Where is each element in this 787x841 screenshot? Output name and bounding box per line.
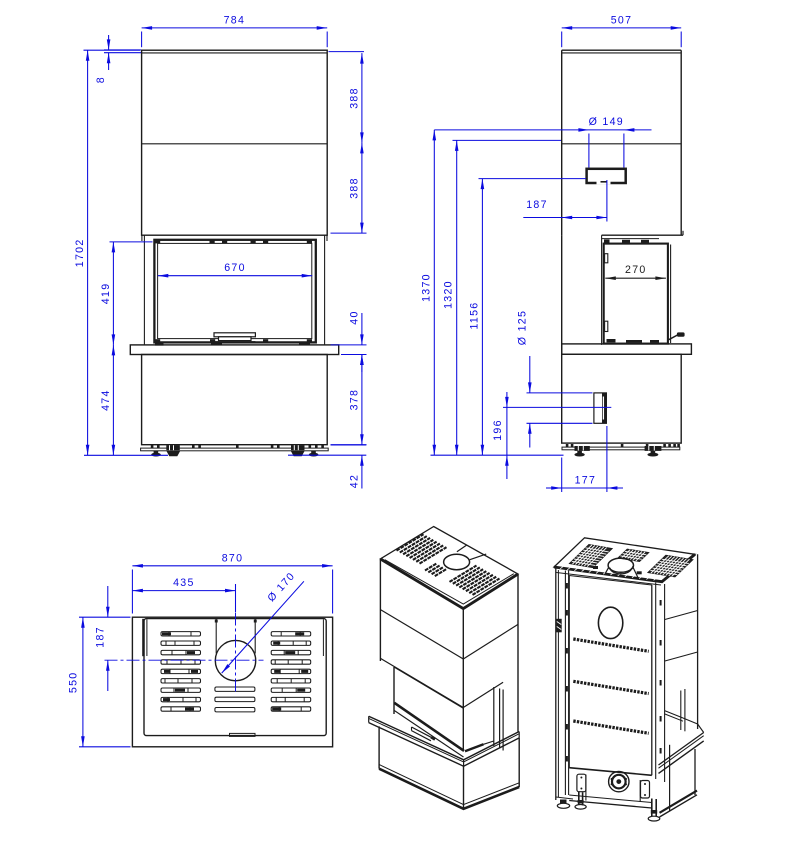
svg-text:419: 419 <box>100 283 112 305</box>
svg-text:1320: 1320 <box>443 280 455 309</box>
svg-text:270: 270 <box>625 264 647 276</box>
svg-text:378: 378 <box>348 389 360 411</box>
svg-text:388: 388 <box>348 87 360 109</box>
svg-text:Ø 125: Ø 125 <box>516 310 528 345</box>
svg-text:Ø 149: Ø 149 <box>589 116 624 128</box>
svg-text:196: 196 <box>492 419 504 441</box>
svg-text:8: 8 <box>95 76 107 83</box>
svg-text:40: 40 <box>348 310 360 324</box>
svg-text:187: 187 <box>94 626 106 648</box>
svg-text:474: 474 <box>100 389 112 411</box>
svg-text:177: 177 <box>575 474 597 486</box>
svg-text:1702: 1702 <box>74 238 86 267</box>
svg-text:187: 187 <box>526 199 548 211</box>
svg-text:42: 42 <box>349 474 361 488</box>
svg-text:870: 870 <box>222 552 244 564</box>
svg-text:1370: 1370 <box>420 273 432 302</box>
svg-text:388: 388 <box>348 177 360 199</box>
svg-text:507: 507 <box>611 14 633 26</box>
svg-text:670: 670 <box>224 262 246 274</box>
svg-text:1156: 1156 <box>468 302 480 330</box>
svg-text:784: 784 <box>224 14 246 26</box>
svg-text:550: 550 <box>67 672 79 694</box>
svg-text:435: 435 <box>173 577 195 589</box>
